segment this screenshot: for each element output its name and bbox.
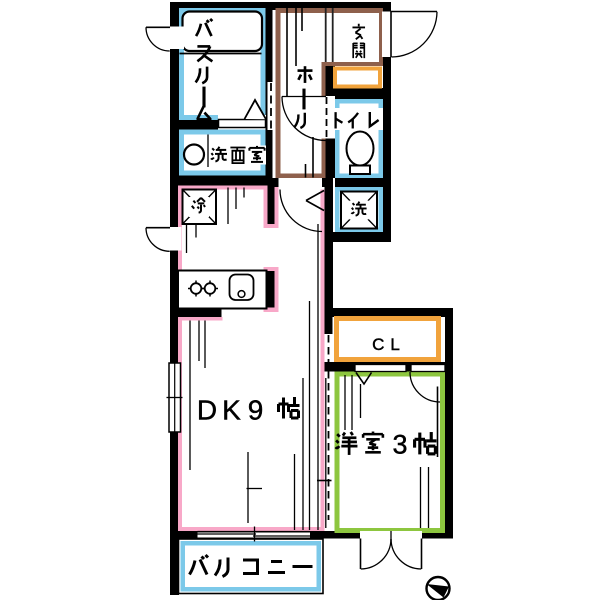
svg-text:9: 9: [248, 395, 264, 426]
svg-text:3: 3: [392, 430, 407, 460]
svg-text:K: K: [222, 395, 241, 426]
svg-text:D: D: [197, 395, 217, 426]
svg-text:CL: CL: [372, 335, 406, 354]
